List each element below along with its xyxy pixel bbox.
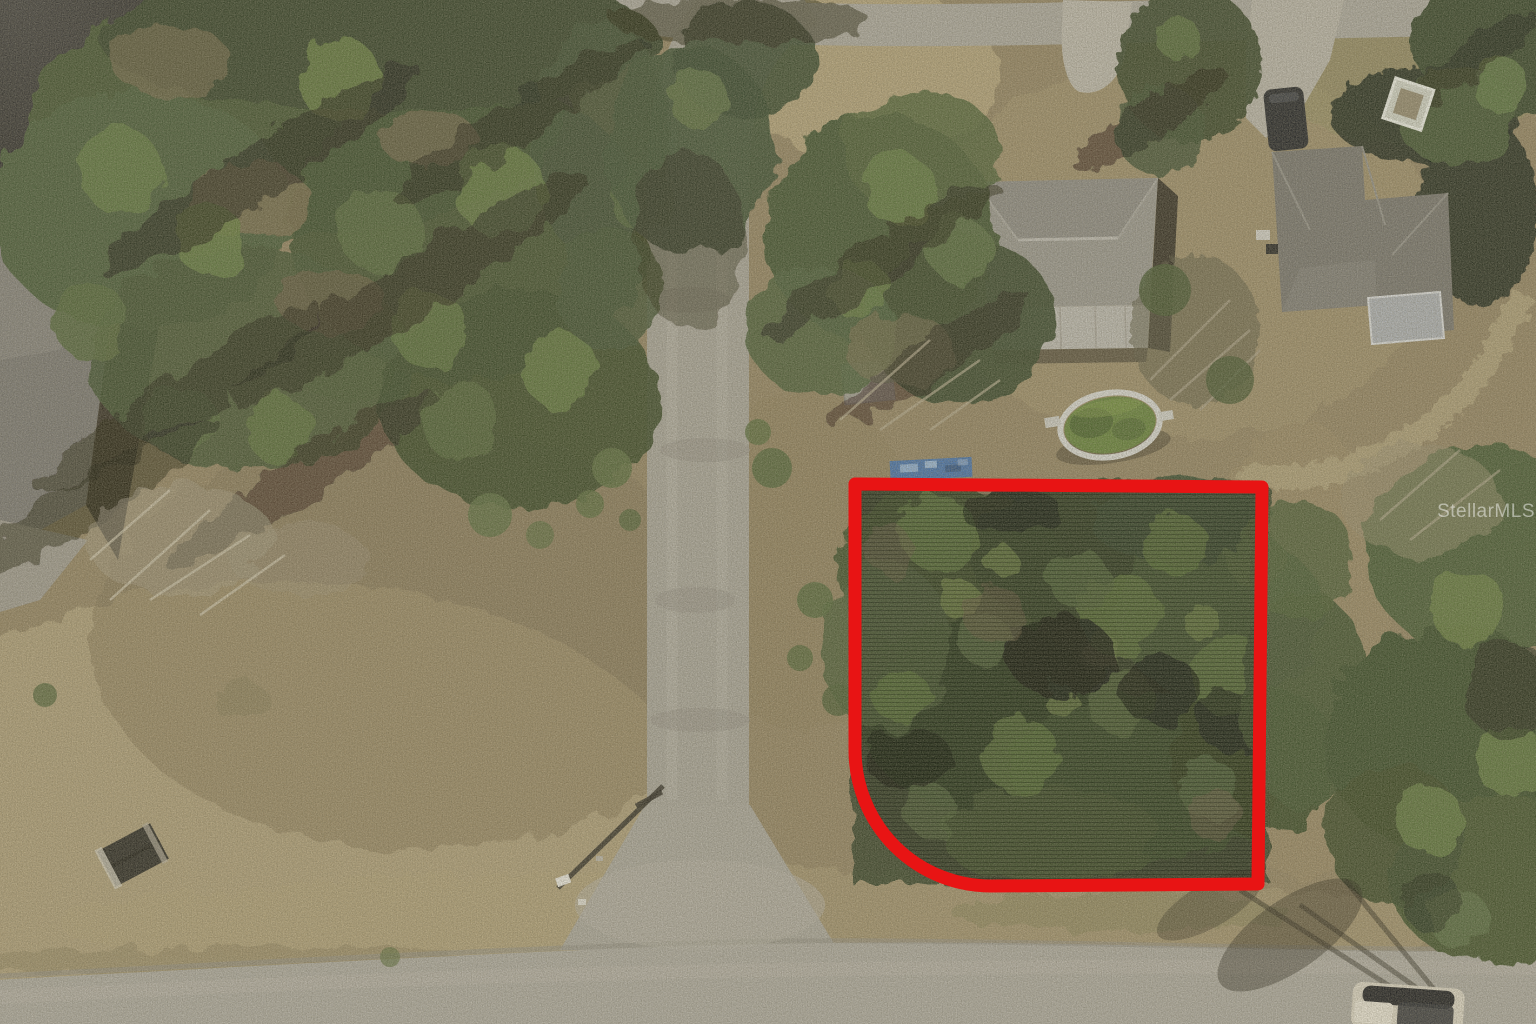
red-lot-outline	[855, 484, 1262, 886]
texture-grain-dark	[0, 0, 1536, 1024]
aerial-photo: StellarMLS	[0, 0, 1536, 1024]
watermark: StellarMLS	[1437, 501, 1536, 523]
aerial-photo-canvas	[0, 0, 1536, 1024]
